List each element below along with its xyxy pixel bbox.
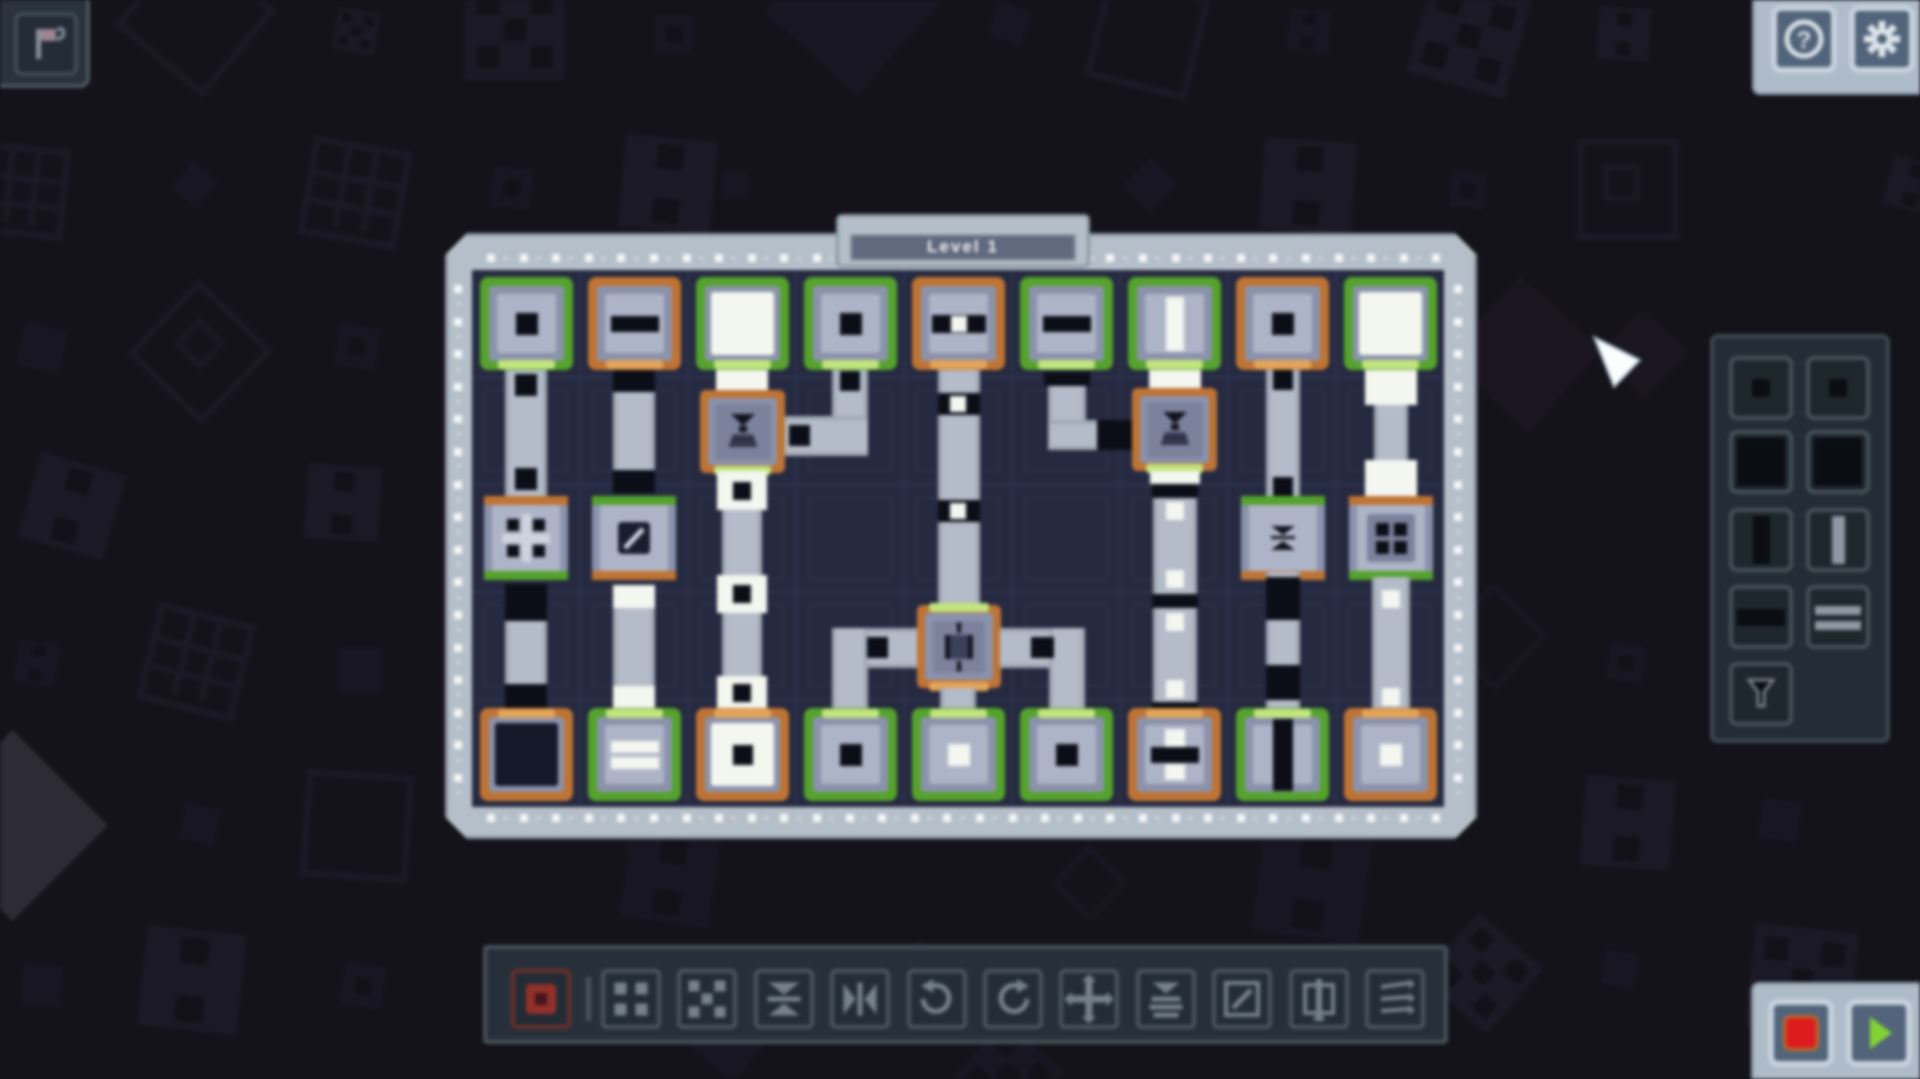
svg-text:?: ? [1797,27,1812,54]
